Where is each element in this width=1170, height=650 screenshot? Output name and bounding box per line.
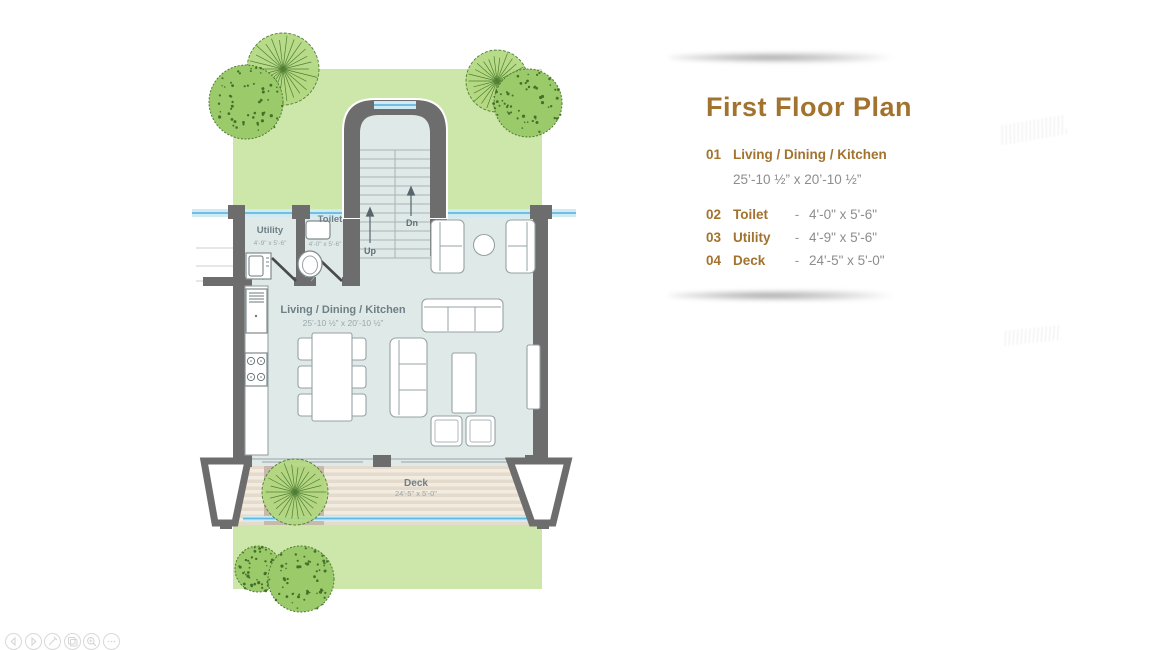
more-button[interactable]: [103, 633, 120, 650]
viewer-toolbar: [5, 633, 120, 650]
next-button[interactable]: [25, 633, 42, 650]
living-dims: 25’-10 ½” x 20’-10 ½”: [303, 318, 384, 328]
deck-label: Deck: [404, 478, 428, 489]
utility-label: Utility: [257, 225, 284, 236]
dining-set: [298, 333, 366, 421]
legend-num: 04: [706, 249, 733, 272]
legend-name: Living / Dining / Kitchen: [733, 143, 887, 166]
legend-separator: -: [785, 226, 809, 249]
copy-button[interactable]: [64, 633, 81, 650]
armchair-top-left: [431, 220, 464, 273]
stairs-up-label: Up: [364, 246, 376, 256]
washing-machine: [246, 253, 271, 279]
deck-dims: 24'-5" x 5'-0": [395, 489, 437, 498]
copy-icon: [65, 634, 80, 649]
legend-dims: 4'-9" x 5'-6": [809, 230, 877, 245]
living-label: Living / Dining / Kitchen: [280, 304, 406, 316]
toilet-dims: 4'-0" x 5'-6": [309, 241, 342, 248]
armchair-bottom-left: [431, 416, 462, 446]
tree-fan-deck: [262, 459, 328, 525]
tv-console: [527, 345, 540, 409]
coffee-table: [452, 353, 476, 413]
toilet-label: Toilet: [318, 214, 343, 225]
sofa-horizontal: [422, 299, 503, 332]
stairs-down-label: Dn: [406, 218, 418, 228]
paper-shadow-bottom: [668, 291, 960, 300]
armchair-top-right: [506, 220, 535, 273]
legend-name: Deck: [733, 249, 785, 272]
stove: [245, 353, 267, 386]
edit-icon: [45, 634, 60, 649]
legend-dims: 24'-5" x 5'-0": [809, 253, 885, 268]
previous-icon: [6, 634, 21, 649]
armchair-bottom-right: [466, 416, 495, 446]
zoom-icon: [84, 634, 99, 649]
tree-shrub-top-left: [209, 65, 283, 139]
round-table: [474, 235, 495, 256]
legend-dims: 25’-10 ½” x 20’-10 ½”: [706, 168, 986, 191]
washbasin: [298, 251, 322, 277]
legend-item-living: 01Living / Dining / Kitchen 25’-10 ½” x …: [706, 143, 986, 191]
legend-name: Utility: [733, 226, 785, 249]
floor-plan-drawing: Utility 4'-9" x 5'-6" Toilet 4'-0" x 5'-…: [0, 0, 1170, 650]
tree-shrub-bottom-large: [268, 546, 334, 612]
legend-panel: First Floor Plan 01Living / Dining / Kit…: [706, 92, 986, 272]
previous-button[interactable]: [5, 633, 22, 650]
edit-button[interactable]: [44, 633, 61, 650]
fridge: [246, 289, 267, 333]
legend-item-utility: 03Utility-4'-9" x 5'-6": [706, 226, 986, 249]
legend-num: 03: [706, 226, 733, 249]
entry-steps: [196, 248, 233, 281]
next-icon: [26, 634, 41, 649]
legend-item-toilet: 02Toilet-4'-0" x 5'-6": [706, 203, 986, 226]
zoom-button[interactable]: [83, 633, 100, 650]
page-title: First Floor Plan: [706, 92, 986, 123]
legend-item-deck: 04Deck-24'-5" x 5'-0": [706, 249, 986, 272]
legend-separator: -: [785, 249, 809, 272]
legend-separator: -: [785, 203, 809, 226]
page: Utility 4'-9" x 5'-6" Toilet 4'-0" x 5'-…: [0, 0, 1170, 650]
sofa-vertical: [390, 338, 427, 417]
utility-dims: 4'-9" x 5'-6": [254, 240, 287, 247]
paper-shadow-top: [668, 53, 960, 62]
more-icon: [104, 634, 119, 649]
legend-num: 02: [706, 203, 733, 226]
legend-dims: 4'-0" x 5'-6": [809, 207, 877, 222]
legend-num: 01: [706, 143, 733, 166]
legend-name: Toilet: [733, 203, 785, 226]
